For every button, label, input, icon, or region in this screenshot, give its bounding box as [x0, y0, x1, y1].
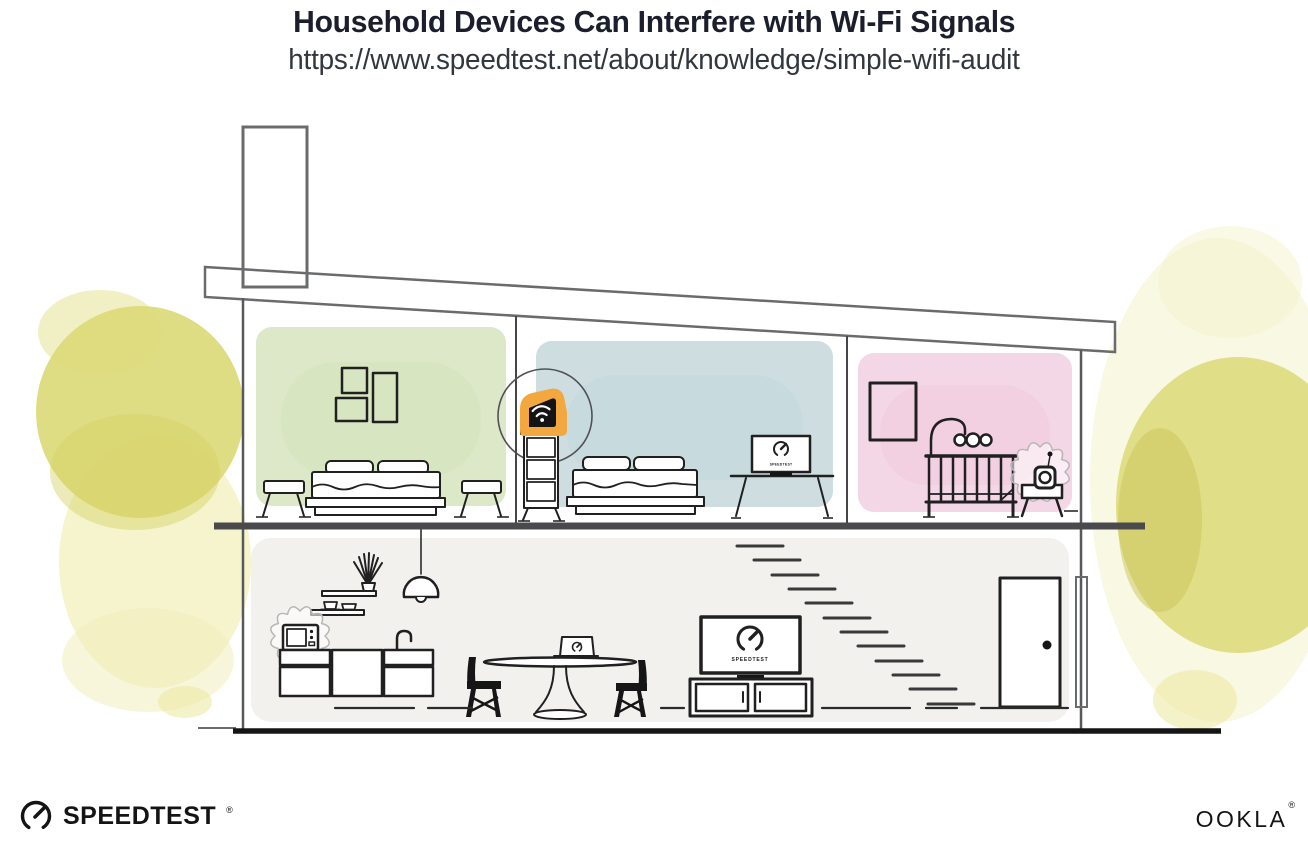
monitor-screen-label: SPEEDTEST: [770, 463, 793, 467]
doorknob: [1043, 641, 1052, 650]
page-title: Household Devices Can Interfere with Wi-…: [293, 4, 1015, 40]
ookla-wordmark: OOKLA: [1196, 806, 1288, 832]
speedtest-wordmark: SPEEDTEST: [63, 802, 216, 831]
foliage-left: [36, 290, 251, 718]
registered-mark: ®: [1288, 800, 1295, 810]
pillow: [583, 457, 630, 470]
wifi-router-icon: [520, 389, 567, 436]
house-illustration: SPEEDTEST: [0, 0, 1308, 861]
media-console: [690, 679, 812, 716]
foliage-right: [1090, 226, 1308, 730]
computer-monitor: SPEEDTEST: [752, 436, 810, 476]
tv-screen-label: SPEEDTEST: [732, 657, 769, 663]
microwave-icon: [283, 625, 318, 650]
source-url: https://www.speedtest.net/about/knowledg…: [0, 44, 1308, 77]
bed: [567, 457, 704, 514]
speedtest-gauge-icon: [18, 798, 54, 834]
dresser: [521, 430, 562, 520]
television: SPEEDTEST: [701, 617, 800, 679]
chimney: [243, 127, 307, 287]
registered-mark: ®: [226, 805, 233, 815]
ookla-logo: OOKLA®: [1196, 806, 1294, 833]
header: Household Devices Can Interfere with Wi-…: [0, 4, 1308, 77]
speedtest-logo: SPEEDTEST®: [18, 798, 232, 834]
pillow: [634, 457, 684, 470]
